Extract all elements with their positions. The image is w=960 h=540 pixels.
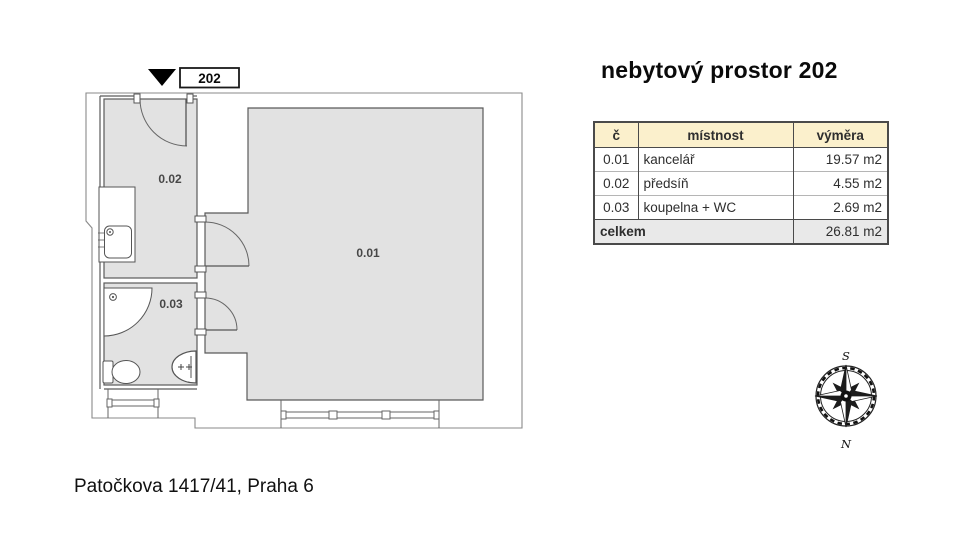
- table-row: 0.01 kancelář 19.57 m2: [594, 148, 888, 172]
- room-label-bath: 0.03: [159, 297, 183, 311]
- room-office: [205, 108, 483, 400]
- room-number: 0.01: [594, 148, 638, 172]
- compass-bottom-label: N: [840, 437, 852, 451]
- marker-triangle-icon: [148, 69, 176, 86]
- room-number: 0.02: [594, 172, 638, 196]
- door-jamb: [195, 216, 206, 222]
- area-table: č místnost výměra 0.01 kancelář 19.57 m2…: [593, 121, 889, 245]
- compass-top-label: S: [842, 349, 850, 363]
- rooms: [104, 99, 483, 400]
- door-jamb: [187, 94, 193, 103]
- page-title: nebytový prostor 202: [601, 57, 838, 84]
- faucet-dot: [112, 296, 114, 298]
- room-area: 19.57 m2: [793, 148, 888, 172]
- address-text: Patočkova 1417/41, Praha 6: [74, 476, 314, 498]
- table-header-row: č místnost výměra: [594, 122, 888, 148]
- column-header-room: místnost: [638, 122, 793, 148]
- marker-label: 202: [198, 71, 221, 86]
- door-jamb: [195, 329, 206, 335]
- kitchen-counter: [98, 187, 135, 262]
- compass-hub-center: [844, 394, 848, 398]
- room-number: 0.03: [594, 196, 638, 220]
- toilet-bowl: [112, 361, 140, 384]
- compass-rose: S N: [800, 336, 892, 458]
- toilet: [103, 361, 140, 384]
- faucet-dot: [109, 231, 111, 233]
- column-header-number: č: [594, 122, 638, 148]
- room-area: 2.69 m2: [793, 196, 888, 220]
- total-area: 26.81 m2: [793, 220, 888, 245]
- bathroom-window: [107, 389, 159, 418]
- door-jamb: [134, 94, 140, 103]
- door-jamb: [195, 292, 206, 298]
- door-jamb: [195, 266, 206, 272]
- table-row: 0.03 koupelna + WC 2.69 m2: [594, 196, 888, 220]
- office-window: [281, 400, 439, 428]
- room-name: kancelář: [638, 148, 793, 172]
- column-header-area: výměra: [793, 122, 888, 148]
- unit-marker: 202: [148, 68, 239, 88]
- table-row: 0.02 předsíň 4.55 m2: [594, 172, 888, 196]
- room-label-hall: 0.02: [158, 172, 182, 186]
- room-label-office: 0.01: [356, 246, 380, 260]
- page: 202 0.01 0.02 0.03 nebytový prostor 202 …: [0, 0, 960, 540]
- table-total-row: celkem 26.81 m2: [594, 220, 888, 245]
- room-name: předsíň: [638, 172, 793, 196]
- room-area: 4.55 m2: [793, 172, 888, 196]
- room-name: koupelna + WC: [638, 196, 793, 220]
- floor-plan: 202 0.01 0.02 0.03: [0, 0, 560, 460]
- total-label: celkem: [594, 220, 793, 245]
